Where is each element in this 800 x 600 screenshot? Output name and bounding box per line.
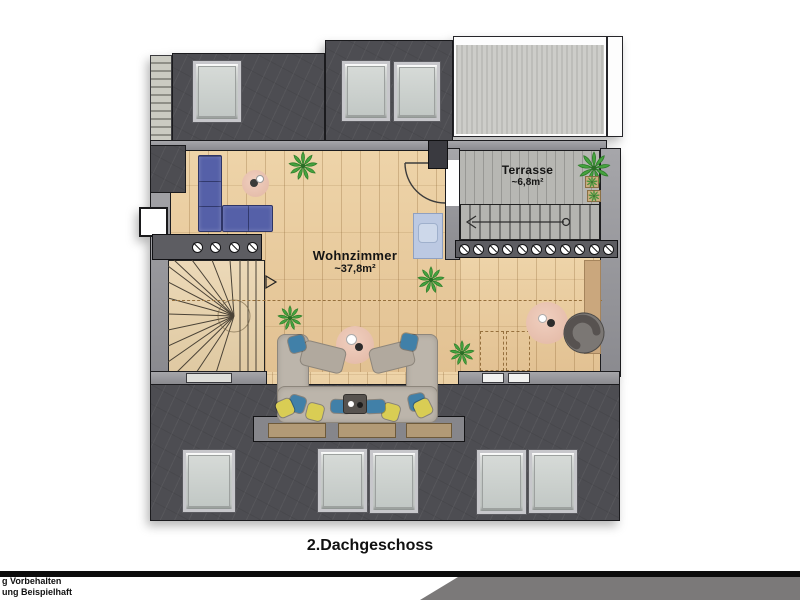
- room-label-terrasse: Terrasse ~6,8m²: [455, 163, 600, 188]
- railing-post-icon: [192, 242, 203, 253]
- wall-niche: [139, 207, 168, 237]
- railing-post-icon: [603, 244, 614, 255]
- skylight-window: [394, 62, 440, 121]
- skylight-window: [477, 450, 526, 514]
- skylight-window: [529, 450, 577, 513]
- bay-window: [406, 423, 452, 438]
- slope-dashed-box: [506, 331, 530, 371]
- skylight-window: [193, 61, 241, 122]
- plant-icon: [288, 151, 318, 181]
- floor-plan: Wohnzimmer ~37,8m² Terrasse ~6,8m²: [0, 0, 800, 600]
- wall-top: [150, 140, 607, 151]
- room-label-wohnzimmer: Wohnzimmer ~37,8m²: [280, 248, 430, 275]
- stair-direction-arrow-icon: [263, 274, 279, 290]
- railing-post-icon: [517, 244, 528, 255]
- slope-dashed-line: [172, 300, 602, 301]
- skylight-window: [370, 450, 418, 513]
- disclaimer-text: g Vorbehalten ung Beispielhaft: [2, 576, 72, 597]
- sofa-blue-vertical: [198, 155, 222, 232]
- plant-icon: [449, 340, 475, 366]
- railing-post-icon: [229, 242, 240, 253]
- footer-accent-shape: [420, 577, 800, 600]
- wall-pillar: [428, 140, 448, 169]
- interior-stair: [168, 260, 265, 373]
- disclaimer-line-1: g Vorbehalten: [2, 576, 72, 587]
- roof-edge-ladder-strip: [150, 55, 172, 144]
- pillow-icon: [365, 400, 385, 414]
- stair-railing-posts: [192, 240, 258, 254]
- footer-divider-bar: [0, 571, 800, 577]
- railing-post-icon: [473, 244, 484, 255]
- railing-post-icon: [589, 244, 600, 255]
- pergola-slats: [456, 45, 604, 134]
- coffee-table: [343, 394, 367, 414]
- floor-plan-page: Wohnzimmer ~37,8m² Terrasse ~6,8m² 2.Dac…: [0, 0, 800, 600]
- armchair: [561, 310, 607, 356]
- disclaimer-line-2: ung Beispielhaft: [2, 587, 72, 598]
- wall-window-slot: [508, 373, 530, 383]
- terrace-stair: [460, 204, 600, 240]
- railing-post-icon: [560, 244, 571, 255]
- bay-window: [338, 423, 396, 438]
- railing-post-icon: [502, 244, 513, 255]
- railing-post-icon: [545, 244, 556, 255]
- railing-post-icon: [531, 244, 542, 255]
- skylight-window: [183, 450, 235, 512]
- wall-window-slot: [186, 373, 232, 383]
- floor-title: 2.Dachgeschoss: [250, 537, 490, 555]
- skylight-window: [318, 449, 367, 512]
- sofa-blue-horizontal: [222, 205, 273, 232]
- room-area: ~6,8m²: [455, 177, 600, 188]
- pergola-side-strip: [607, 36, 623, 137]
- railing-post-icon: [247, 242, 258, 253]
- plant-icon: [277, 305, 303, 331]
- railing-post-icon: [459, 244, 470, 255]
- railing-post-icon: [210, 242, 221, 253]
- wall-left-block: [150, 145, 186, 193]
- railing-post-icon: [574, 244, 585, 255]
- skylight-window: [342, 61, 390, 121]
- room-name: Terrasse: [455, 163, 600, 177]
- side-table-round: [242, 170, 269, 197]
- slope-dashed-box: [480, 331, 504, 371]
- terrace-railing-posts: [459, 243, 614, 255]
- wall-window-slot: [482, 373, 504, 383]
- sofa-sectional: [275, 330, 440, 425]
- railing-post-icon: [488, 244, 499, 255]
- pillow-icon: [400, 333, 419, 352]
- room-name: Wohnzimmer: [280, 248, 430, 263]
- plant-icon: [588, 190, 600, 202]
- bay-window: [268, 423, 326, 438]
- room-area: ~37,8m²: [280, 263, 430, 275]
